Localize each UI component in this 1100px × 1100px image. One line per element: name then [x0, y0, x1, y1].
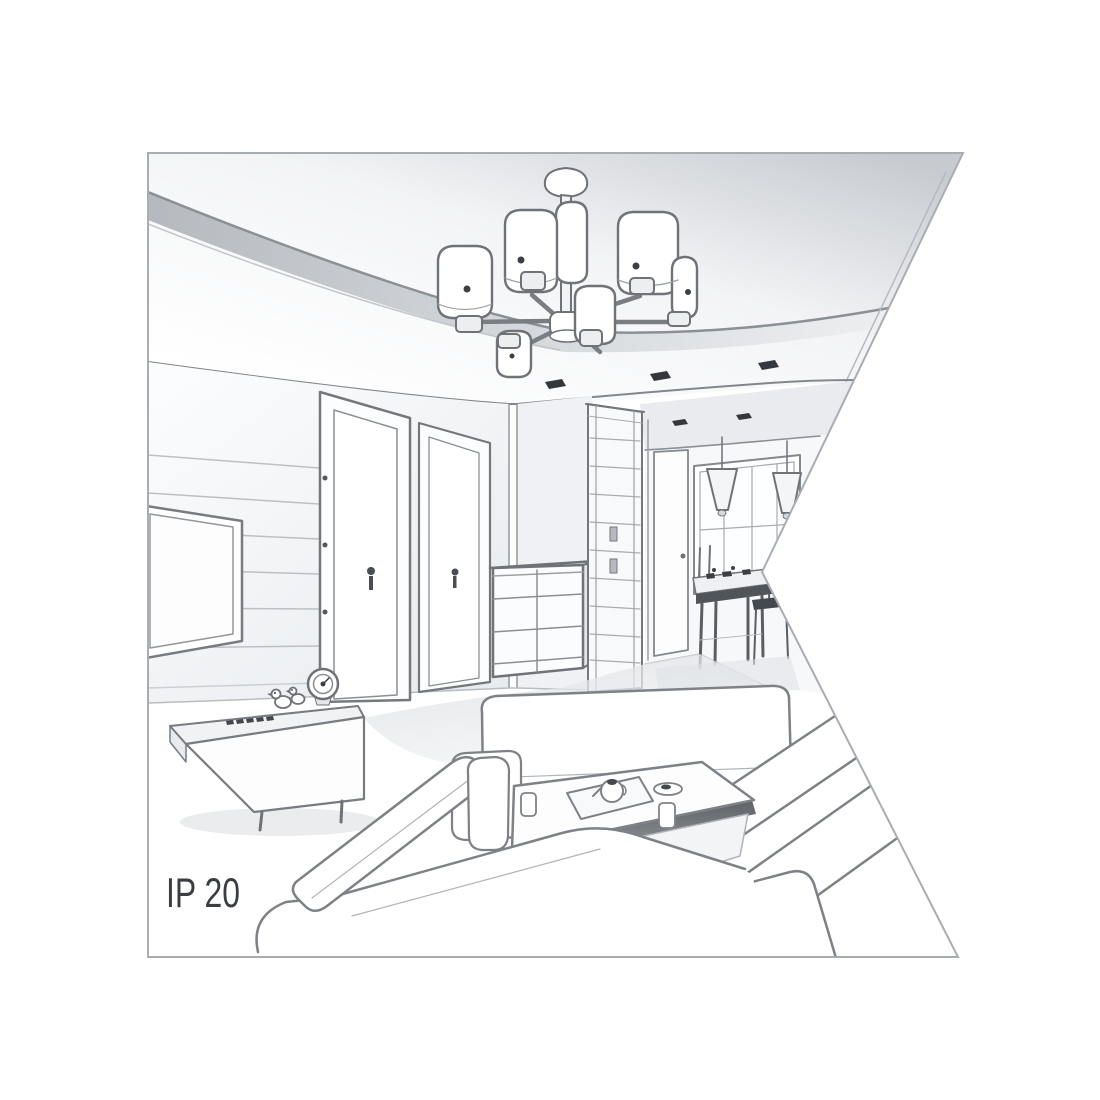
tv-panel: [140, 505, 242, 659]
interior-door-2: [419, 423, 490, 692]
room-line-art: [0, 0, 1100, 1100]
product-room-illustration: IP 20: [0, 0, 1100, 1100]
wardrobe: [586, 404, 644, 692]
interior-door-1: [320, 392, 410, 702]
chandelier-canopy: [545, 168, 587, 197]
ip-rating-label: IP 20: [166, 872, 240, 914]
hallway-door: [648, 420, 688, 660]
chest-of-drawers: [490, 561, 596, 677]
